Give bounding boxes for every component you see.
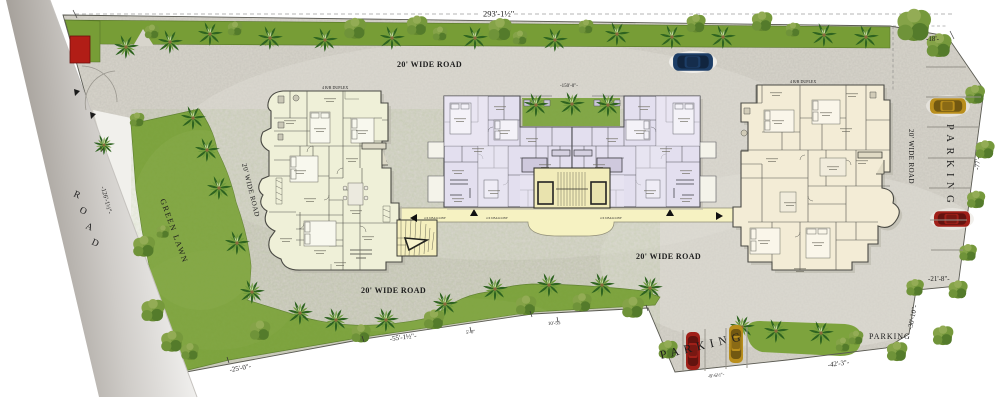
svg-text:PARKING: PARKING [869,332,911,341]
svg-text:4 X 6 BALCONY: 4 X 6 BALCONY [424,216,447,220]
svg-text:-150'-0"-: -150'-0"- [560,84,578,89]
svg-text:20' WIDE ROAD: 20' WIDE ROAD [907,129,915,184]
svg-text:4 B/R DUPLEX: 4 B/R DUPLEX [790,79,816,84]
svg-text:20' WIDE ROAD: 20' WIDE ROAD [397,60,462,69]
svg-text:-21'-8"-: -21'-8"- [928,275,950,283]
svg-text:5'-0": 5'-0" [466,330,476,336]
svg-text:293'-1½": 293'-1½" [483,9,514,19]
svg-text:10'-55: 10'-55 [548,321,561,327]
svg-text:4 B/R DUPLEX: 4 B/R DUPLEX [322,85,348,90]
svg-text:PARKING: PARKING [944,124,955,208]
svg-text:20' WIDE ROAD: 20' WIDE ROAD [361,286,426,295]
svg-text:-18'-: -18'- [926,35,940,43]
svg-text:4 X 6 BALCONY: 4 X 6 BALCONY [486,216,509,220]
svg-text:20' WIDE ROAD: 20' WIDE ROAD [636,252,701,261]
svg-text:4 X 6 BALCONY: 4 X 6 BALCONY [600,216,623,220]
svg-text:-77'-: -77'- [973,156,982,170]
